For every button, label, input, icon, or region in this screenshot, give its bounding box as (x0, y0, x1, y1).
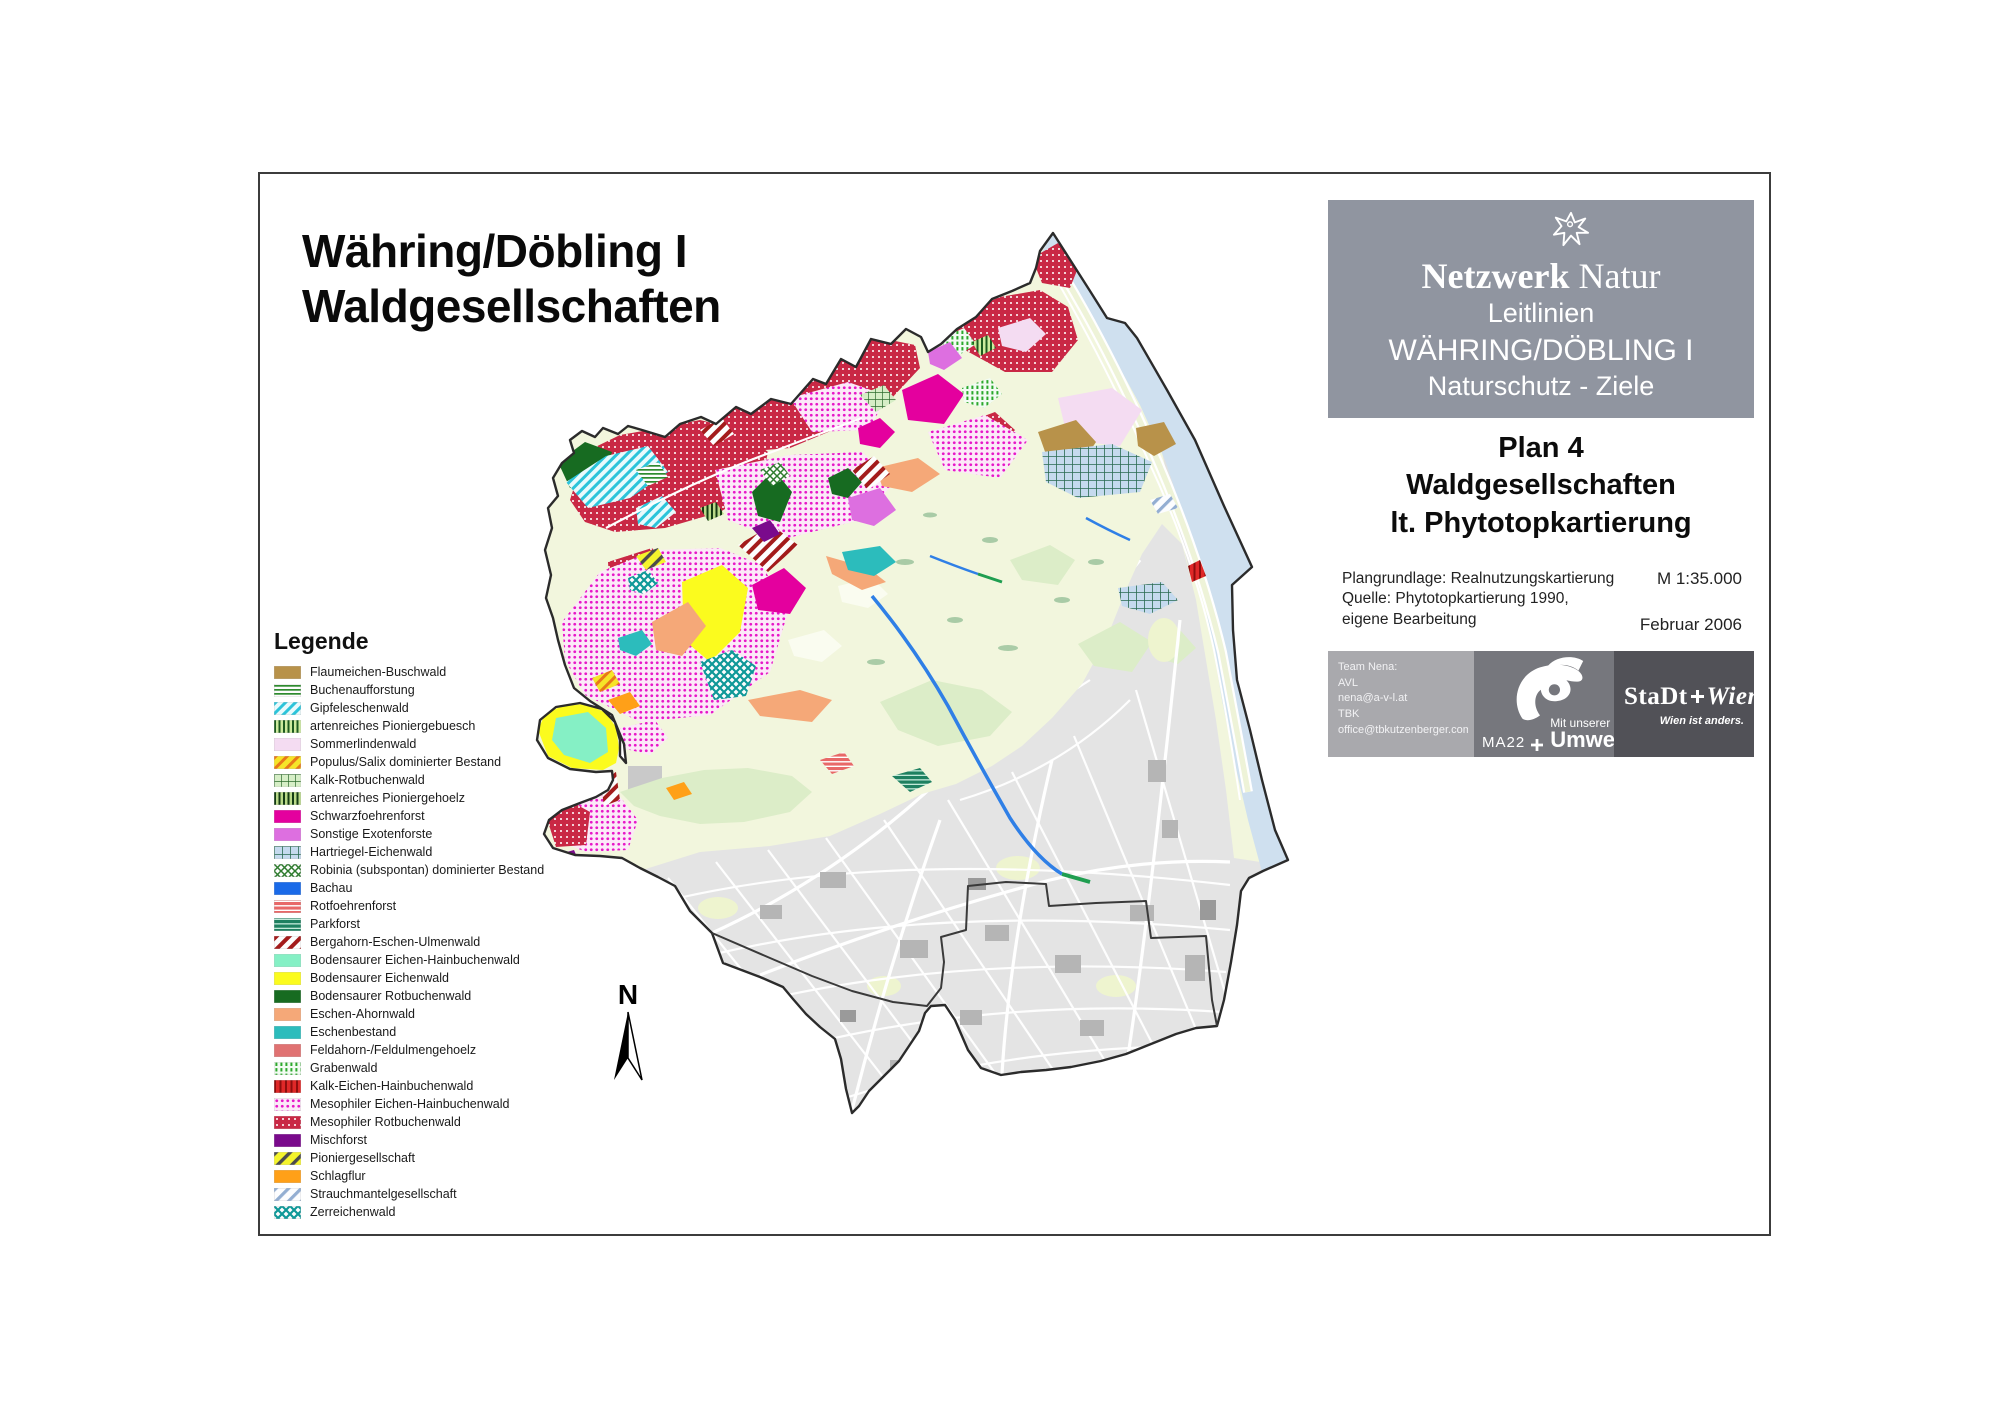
legend-label: Pioniergesellschaft (310, 1151, 415, 1165)
brand-name: Netzwerk Natur (1328, 255, 1754, 297)
legend-item: Populus/Salix dominierter Bestand (274, 753, 534, 771)
plan-title: Waldgesellschaften (1328, 467, 1754, 505)
legend-item: Pioniergesellschaft (274, 1149, 534, 1167)
legend-item: Flaumeichen-Buschwald (274, 663, 534, 681)
legend-label: Kalk-Eichen-Hainbuchenwald (310, 1079, 473, 1093)
legend-swatch (274, 1098, 301, 1111)
legend-item: Strauchmantelgesellschaft (274, 1185, 534, 1203)
legend-label: Mischforst (310, 1133, 367, 1147)
info-panel: Netzwerk Natur Leitlinien WÄHRING/DÖBLIN… (1328, 200, 1754, 757)
legend-swatch (274, 810, 301, 823)
title-line-2: Waldgesellschaften (302, 279, 721, 334)
legend-swatch (274, 846, 301, 859)
legend-swatch (274, 1116, 301, 1129)
legend-item: Mesophiler Eichen-Hainbuchenwald (274, 1095, 534, 1113)
legend-swatch (274, 936, 301, 949)
legend-item: Feldahorn-/Feldulmengehoelz (274, 1041, 534, 1059)
legend-item: Sommerlindenwald (274, 735, 534, 753)
legend-label: Bachau (310, 881, 352, 895)
credits-block: Team Nena:AVLnena@a-v-l.atTBKoffice@tbku… (1328, 651, 1474, 757)
legend-item: Kalk-Rotbuchenwald (274, 771, 534, 789)
legend-items: Flaumeichen-BuschwaldBuchenaufforstungGi… (274, 663, 534, 1221)
legend-swatch (274, 828, 301, 841)
legend-item: Zerreichenwald (274, 1203, 534, 1221)
stadt-wien-word2: Wien (1707, 683, 1762, 711)
panel-subtitle-3: Naturschutz - Ziele (1328, 370, 1754, 404)
legend-swatch (274, 666, 301, 679)
legend-label: Bergahorn-Eschen-Ulmenwald (310, 935, 480, 949)
legend-swatch (274, 684, 301, 697)
legend-swatch (274, 918, 301, 931)
panel-header: Netzwerk Natur Leitlinien WÄHRING/DÖBLIN… (1328, 200, 1754, 418)
legend-label: Gipfeleschenwald (310, 701, 409, 715)
legend-label: Zerreichenwald (310, 1205, 395, 1219)
title-line-1: Währing/Döbling I (302, 224, 721, 279)
legend-swatch (274, 1008, 301, 1021)
legend-swatch (274, 792, 301, 805)
page-title: Währing/Döbling I Waldgesellschaften (302, 224, 721, 334)
legend-label: Hartriegel-Eichenwald (310, 845, 432, 859)
legend-swatch (274, 738, 301, 751)
legend-label: Robinia (subspontan) dominierter Bestand (310, 863, 544, 877)
legend-label: Parkforst (310, 917, 360, 931)
legend-swatch (274, 1080, 301, 1093)
legend-label: Rotfoehrenforst (310, 899, 396, 913)
legend-swatch (274, 990, 301, 1003)
legend-swatch (274, 1026, 301, 1039)
legend-label: Schlagflur (310, 1169, 366, 1183)
stadt-wien-word1: StaDt (1624, 683, 1688, 711)
legend-item: artenreiches Pioniergehoelz (274, 789, 534, 807)
legend-item: Bachau (274, 879, 534, 897)
legend-item: Schlagflur (274, 1167, 534, 1185)
legend-swatch (274, 882, 301, 895)
logo-strip: Team Nena:AVLnena@a-v-l.atTBKoffice@tbku… (1328, 651, 1754, 757)
map-date: Februar 2006 (1640, 615, 1742, 635)
ma22-logo: MA22 Mit unserer Umwelt (1474, 651, 1614, 757)
legend-swatch (274, 900, 301, 913)
legend-item: Schwarzfoehrenforst (274, 807, 534, 825)
cross-icon (1531, 739, 1543, 751)
legend-swatch (274, 1044, 301, 1057)
legend-swatch (274, 1134, 301, 1147)
legend-swatch (274, 1152, 301, 1165)
plan-subtitle: lt. Phytotopkartierung (1328, 505, 1754, 543)
legend-label: Bodensaurer Eichen-Hainbuchenwald (310, 953, 520, 967)
source-note: Plangrundlage: Realnutzungskartierung Qu… (1342, 569, 1614, 635)
legend-label: Bodensaurer Eichenwald (310, 971, 449, 985)
legend-swatch (274, 702, 301, 715)
panel-subtitle-2: WÄHRING/DÖBLING I (1328, 331, 1754, 370)
legend-item: Bodensaurer Eichenwald (274, 969, 534, 987)
legend-swatch (274, 774, 301, 787)
plan-number: Plan 4 (1328, 430, 1754, 468)
legend-label: Sommerlindenwald (310, 737, 416, 751)
legend-label: artenreiches Pioniergebuesch (310, 719, 475, 733)
legend-item: Bergahorn-Eschen-Ulmenwald (274, 933, 534, 951)
legend-swatch (274, 1062, 301, 1075)
legend-label: Eschen-Ahornwald (310, 1007, 415, 1021)
legend-item: Robinia (subspontan) dominierter Bestand (274, 861, 534, 879)
legend-label: Sonstige Exotenforste (310, 827, 432, 841)
legend-item: Sonstige Exotenforste (274, 825, 534, 843)
legend-item: Eschen-Ahornwald (274, 1005, 534, 1023)
legend-label: Strauchmantelgesellschaft (310, 1187, 457, 1201)
cross-icon (1691, 690, 1704, 703)
netzwerk-natur-star-icon (1549, 210, 1593, 248)
legend-label: Mesophiler Rotbuchenwald (310, 1115, 461, 1129)
legend-swatch (274, 756, 301, 769)
legend-swatch (274, 972, 301, 985)
credit-line: office@tbkutzenberger.com (1338, 723, 1468, 739)
legend-swatch (274, 864, 301, 877)
legend-label: artenreiches Pioniergehoelz (310, 791, 465, 805)
legend-item: Hartriegel-Eichenwald (274, 843, 534, 861)
credit-line: TBK (1338, 707, 1468, 723)
legend-item: Rotfoehrenforst (274, 897, 534, 915)
credit-line: AVL (1338, 676, 1468, 692)
legend-item: Mesophiler Rotbuchenwald (274, 1113, 534, 1131)
legend-label: Eschenbestand (310, 1025, 396, 1039)
legend-label: Populus/Salix dominierter Bestand (310, 755, 501, 769)
legend-item: Buchenaufforstung (274, 681, 534, 699)
north-label: N (618, 979, 638, 1010)
legend-swatch (274, 720, 301, 733)
legend-label: Kalk-Rotbuchenwald (310, 773, 425, 787)
stadt-wien-logo: StaDt Wien Wien ist anders. (1614, 651, 1754, 757)
ma22-code: MA22 (1482, 734, 1525, 751)
ma22-eye-icon (1498, 653, 1590, 725)
legend-item: Parkforst (274, 915, 534, 933)
legend-item: Mischforst (274, 1131, 534, 1149)
legend-label: Bodensaurer Rotbuchenwald (310, 989, 471, 1003)
legend-label: Buchenaufforstung (310, 683, 415, 697)
legend-item: Bodensaurer Eichen-Hainbuchenwald (274, 951, 534, 969)
legend-swatch (274, 954, 301, 967)
panel-subtitle-1: Leitlinien (1328, 297, 1754, 331)
legend-swatch (274, 1188, 301, 1201)
legend-item: Kalk-Eichen-Hainbuchenwald (274, 1077, 534, 1095)
legend-item: Eschenbestand (274, 1023, 534, 1041)
legend-label: Schwarzfoehrenforst (310, 809, 425, 823)
legend-label: Mesophiler Eichen-Hainbuchenwald (310, 1097, 509, 1111)
legend-heading: Legende (274, 628, 534, 655)
legend-swatch (274, 1170, 301, 1183)
legend-label: Grabenwald (310, 1061, 377, 1075)
legend-swatch (274, 1206, 301, 1219)
legend-label: Flaumeichen-Buschwald (310, 665, 446, 679)
legend: Legende Flaumeichen-BuschwaldBuchenauffo… (274, 628, 534, 1221)
map-scale: M 1:35.000 (1640, 569, 1742, 589)
legend-item: artenreiches Pioniergebuesch (274, 717, 534, 735)
north-arrow: N (614, 979, 642, 1080)
credit-line: nena@a-v-l.at (1338, 691, 1468, 707)
legend-item: Grabenwald (274, 1059, 534, 1077)
legend-item: Bodensaurer Rotbuchenwald (274, 987, 534, 1005)
legend-label: Feldahorn-/Feldulmengehoelz (310, 1043, 476, 1057)
credit-line: Team Nena: (1338, 660, 1468, 676)
stadt-wien-claim: Wien ist anders. (1660, 715, 1744, 727)
legend-item: Gipfeleschenwald (274, 699, 534, 717)
panel-body: Plan 4 Waldgesellschaften lt. Phytotopka… (1328, 418, 1754, 651)
